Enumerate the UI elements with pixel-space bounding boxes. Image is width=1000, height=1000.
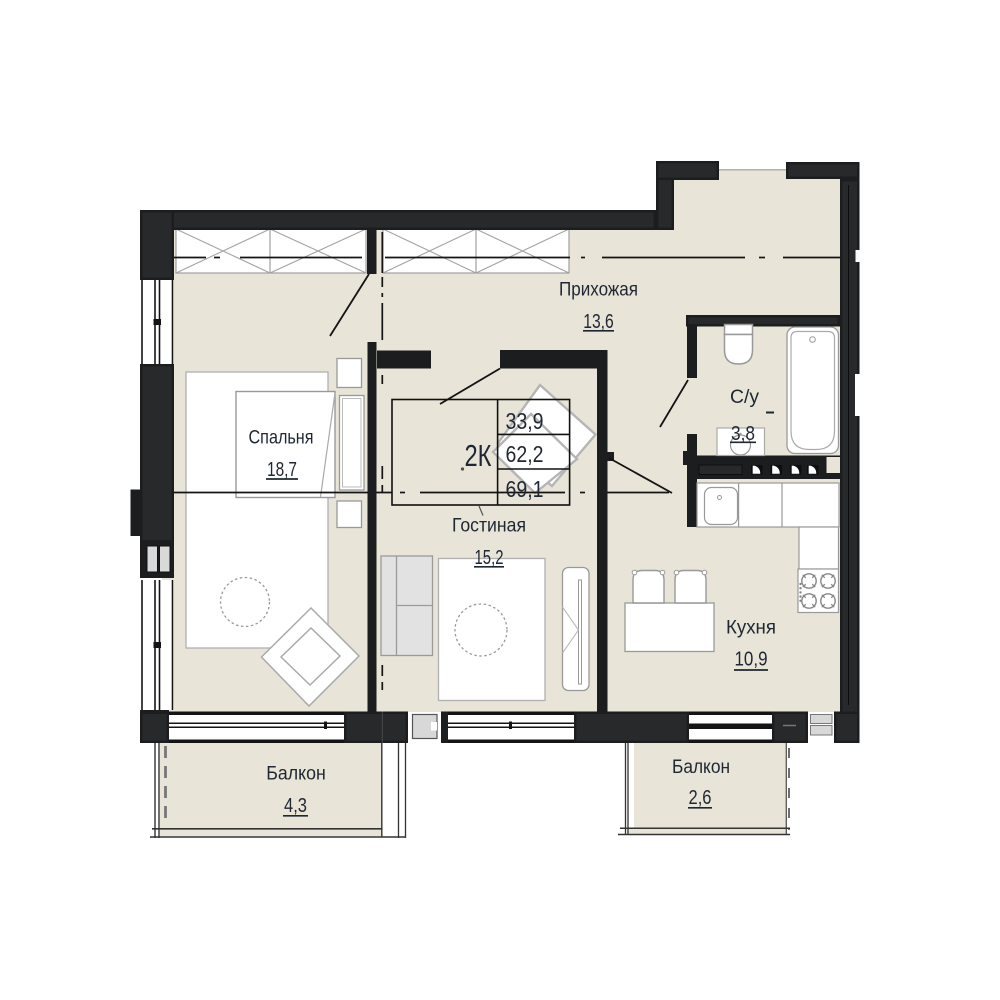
- svg-text:13,6: 13,6: [583, 311, 614, 333]
- svg-text:62,2: 62,2: [506, 441, 544, 467]
- svg-text:33,9: 33,9: [506, 408, 544, 434]
- svg-text:Балкон: Балкон: [266, 764, 326, 785]
- svg-text:Прихожая: Прихожая: [559, 280, 638, 301]
- svg-text:С/у: С/у: [730, 387, 760, 408]
- svg-text:Балкон: Балкон: [672, 757, 730, 778]
- svg-text:18,7: 18,7: [267, 459, 297, 481]
- svg-text:2,6: 2,6: [689, 787, 712, 809]
- svg-text:15,2: 15,2: [475, 547, 504, 569]
- svg-text:2К: 2К: [465, 438, 492, 473]
- svg-text:Кухня: Кухня: [726, 618, 776, 639]
- svg-text:10,9: 10,9: [735, 649, 768, 671]
- svg-text:Гостиная: Гостиная: [452, 516, 526, 537]
- svg-text:69,1: 69,1: [506, 476, 544, 502]
- svg-text:Спальня: Спальня: [249, 428, 314, 449]
- svg-text:4,3: 4,3: [284, 795, 307, 817]
